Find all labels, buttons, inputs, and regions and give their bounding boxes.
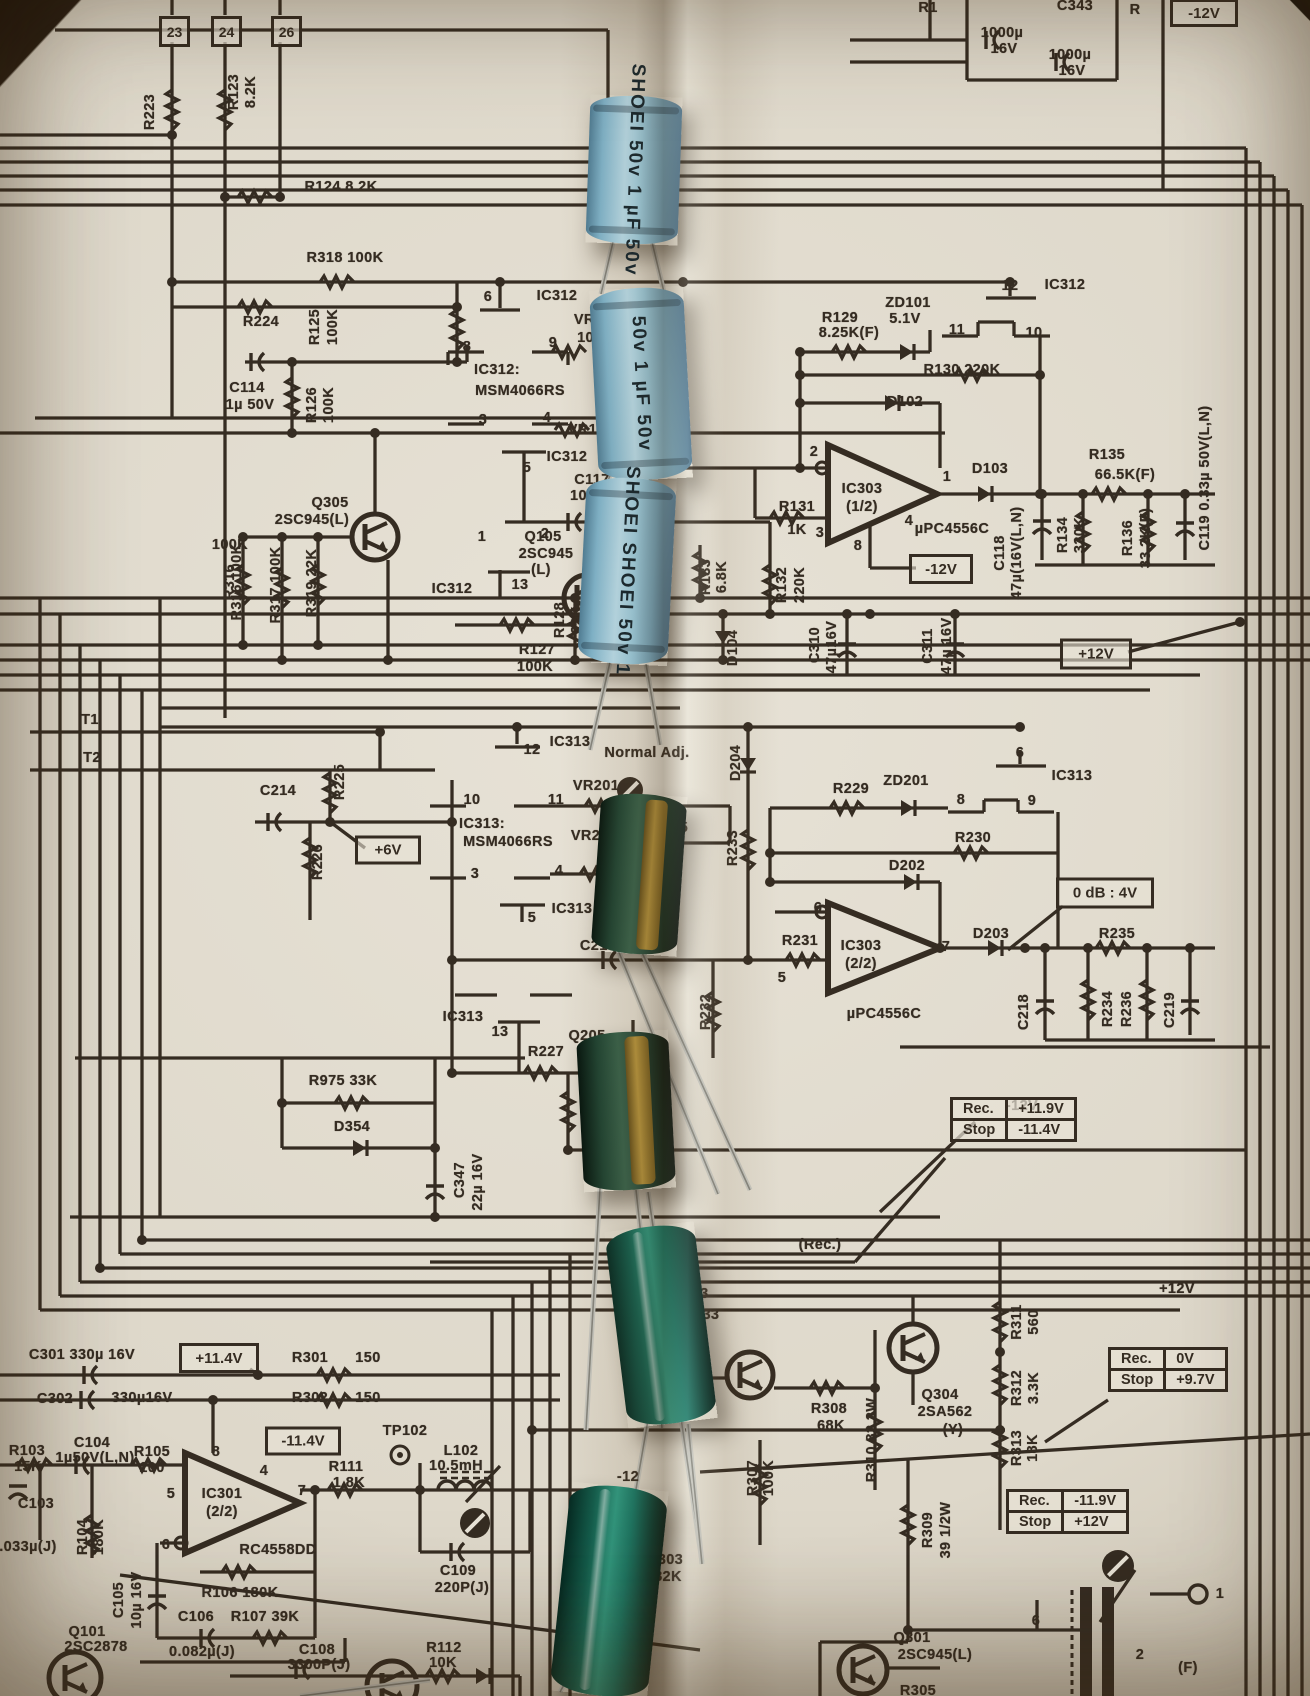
voltage-table-cell: -11.9V (1063, 1491, 1128, 1512)
electrolytic-capacitor-blue: 50v 1 µF 50v (589, 286, 693, 483)
schematic-label: 1µ 50V (226, 397, 275, 413)
schematic-label: (Y) (943, 1422, 964, 1438)
schematic-label: 3300P(J) (288, 1657, 351, 1673)
schematic-label: IC313: (459, 816, 505, 832)
schematic-label: RC4558DD (239, 1542, 316, 1558)
voltage-table-cell: Stop (1008, 1512, 1063, 1533)
schematic-label: R124 8.2K (305, 179, 378, 195)
schematic-label: MSM4066RS (475, 383, 565, 399)
schematic-label: 3 (479, 412, 487, 428)
schematic-label: 3 (816, 525, 824, 541)
schematic-label: 4 (555, 863, 563, 879)
schematic-label: R107 39K (231, 1609, 300, 1625)
schematic-label: 1.8K (333, 1475, 365, 1491)
schematic-label: 18K (1025, 1434, 1041, 1462)
schematic-label: IC312: (474, 362, 520, 378)
terminal-box: 23 (159, 16, 190, 47)
schematic-label: R307 (745, 1460, 761, 1496)
schematic-label: 3 (471, 866, 479, 882)
schematic-label: 11 (949, 322, 965, 338)
schematic-label: R135 (1089, 447, 1125, 463)
schematic-label: R1 (918, 0, 937, 16)
schematic-label: L102 (444, 1443, 479, 1459)
schematic-label: R312 (1009, 1370, 1025, 1406)
schematic-label: R132 (774, 567, 790, 603)
schematic-label: C119 0.33µ 50V(L,N) (1197, 406, 1213, 551)
schematic-label: R235 (1099, 926, 1135, 942)
schematic-label: 100K (761, 1460, 777, 1496)
schematic-label: 39 1/2W (938, 1502, 954, 1559)
schematic-label: ZD101 (885, 295, 931, 311)
schematic-label: 4 (905, 513, 913, 529)
voltage-box: -12V (1170, 0, 1238, 27)
schematic-label: C104 (74, 1435, 110, 1451)
schematic-label: 16V (1059, 63, 1086, 79)
schematic-label: Q305 (311, 495, 348, 511)
schematic-label: 1000µ (1049, 47, 1092, 63)
schematic-label: IC313 (552, 901, 593, 917)
schematic-label: C109 (440, 1563, 476, 1579)
schematic-label: D354 (334, 1119, 370, 1135)
schematic-label: D102 (887, 394, 923, 410)
schematic-label: 66.5K(F) (1095, 467, 1155, 483)
voltage-table-cell: Stop (952, 1120, 1007, 1141)
schematic-label: 8.25K(F) (819, 325, 879, 341)
schematic-label: R223 (142, 94, 158, 130)
schematic-label: Normal Adj. (604, 745, 689, 761)
schematic-label: 5 (528, 910, 536, 926)
schematic-label: R318 100K (307, 250, 384, 266)
schematic-label: Q101 (68, 1624, 105, 1640)
schematic-label: C108 (299, 1642, 335, 1658)
schematic-label: R134 (1055, 517, 1071, 553)
schematic-label: R231 (782, 933, 818, 949)
schematic-label: 2SC945 (519, 546, 574, 562)
schematic-label: (F) (1178, 1660, 1198, 1676)
schematic-label: 22µ 16V (470, 1153, 486, 1210)
schematic-label: C219 (1162, 992, 1178, 1028)
schematic-label: R319 22K (304, 549, 320, 618)
schematic-label: R106 180K (202, 1585, 279, 1601)
voltage-table: Rec.-11.9VStop+12V (1006, 1489, 1129, 1534)
schematic-label: IC312 (547, 449, 588, 465)
schematic-label: R301 (292, 1350, 328, 1366)
schematic-label: R226 (310, 844, 326, 880)
schematic-label: (1/2) (846, 499, 878, 515)
voltage-table-cell: Rec. (1110, 1349, 1165, 1370)
terminal-box: 26 (271, 16, 302, 47)
schematic-label: T1 (81, 712, 99, 728)
schematic-label: IC303 (842, 481, 883, 497)
voltage-box: -11.4V (265, 1427, 341, 1456)
schematic-label: 2 (810, 444, 818, 460)
schematic-label: 47µ16V (824, 621, 840, 674)
voltage-box: 0 dB : 4V (1056, 878, 1154, 909)
schematic-label: 10K (429, 1655, 457, 1671)
schematic-label: 180K (91, 1519, 107, 1555)
schematic-label: 13 (512, 577, 529, 593)
voltage-table-cell: +9.7V (1165, 1370, 1226, 1391)
schematic-label: 6 (814, 900, 822, 916)
schematic-label: R311 (1009, 1304, 1025, 1339)
schematic-label: 3.3K (1026, 1372, 1042, 1404)
schematic-label: IC313 (550, 734, 591, 750)
schematic-label: TP102 (383, 1423, 428, 1439)
schematic-label: 9 (1028, 793, 1036, 809)
schematic-label: 13 (492, 1024, 509, 1040)
schematic-label: 100K (321, 387, 337, 423)
voltage-table-cell: Stop (1110, 1370, 1165, 1391)
schematic-label: R310 82 2W (864, 1398, 880, 1483)
voltage-box: -12V (909, 554, 973, 584)
schematic-label: R136 (1120, 520, 1136, 556)
schematic-label: 5.1V (889, 311, 920, 327)
voltage-table-cell: +12V (1063, 1512, 1128, 1533)
schematic-label: Q301 (893, 1630, 930, 1646)
terminal-box: 24 (211, 16, 242, 47)
schematic-label: 8 (854, 538, 862, 554)
schematic-label: R229 (833, 781, 869, 797)
schematic-label: 100 (139, 1460, 164, 1476)
schematic-label: 6 (484, 289, 492, 305)
schematic-label: 2SC945(L) (898, 1647, 973, 1663)
schematic-label: -12 (617, 1469, 639, 1485)
schematic-label: 8 (463, 339, 471, 355)
schematic-label: C343 (1057, 0, 1093, 14)
schematic-label: R316 100K (229, 544, 245, 621)
schematic-label: R313 (1009, 1430, 1025, 1466)
schematic-label: 10 (1026, 325, 1043, 341)
schematic-label: IC313 (443, 1009, 484, 1025)
schematic-label: C347 (452, 1162, 468, 1198)
schematic-label: 100K (325, 309, 341, 345)
schematic-label: R128 (552, 602, 568, 638)
schematic-label: 5 (523, 460, 531, 476)
electrolytic-capacitor-blue: SHOEI SHOEI 50v 1 (577, 476, 677, 666)
schematic-label: R (1130, 2, 1141, 18)
schematic-label: 330K (1072, 517, 1088, 553)
schematic-label: R111 (329, 1459, 364, 1475)
schematic-label: R232 (698, 994, 714, 1030)
schematic-label: 8.2K (243, 76, 259, 108)
schematic-label: R133 (698, 559, 714, 595)
schematic-label: R234 (1100, 991, 1116, 1027)
schematic-label: R127 (519, 642, 555, 658)
electrolytic-capacitor-blue: SHOEI 50v 1 µF 50v (585, 94, 682, 245)
schematic-label: (L) (531, 562, 551, 578)
schematic-label: 16V (991, 41, 1018, 57)
schematic-label: 15K (14, 1459, 42, 1475)
schematic-label: C311 (920, 628, 936, 663)
schematic-label: 8 (957, 792, 965, 808)
schematic-label: 4 (260, 1463, 268, 1479)
schematic-label: D104 (725, 630, 741, 666)
schematic-label: 1 (478, 529, 486, 545)
schematic-label: C114 (229, 380, 264, 396)
schematic-label: IC301 (202, 1486, 243, 1502)
schematic-label: IC312 (432, 581, 473, 597)
schematic-label: D203 (973, 926, 1009, 942)
schematic-label: 1 (1216, 1586, 1224, 1602)
schematic-label: R224 (243, 314, 279, 330)
schematic-label: 47µ 16V (939, 617, 955, 674)
schematic-label: 7 (298, 1483, 306, 1499)
schematic-label: 5 (167, 1486, 175, 1502)
schematic-label: 11 (548, 792, 564, 808)
schematic-label: R233 (725, 830, 741, 866)
schematic-label: 12 (524, 742, 541, 758)
schematic-label: 1K (787, 522, 806, 538)
voltage-table-cell: -11.4V (1007, 1120, 1076, 1141)
schematic-label: 2SC945(L) (275, 512, 350, 528)
schematic-label: R236 (1119, 991, 1135, 1027)
schematic-label: C310 (807, 627, 823, 663)
schematic-label: (2/2) (845, 956, 877, 972)
schematic-label: 7 (942, 939, 950, 955)
schematic-label: .033µ(J) (0, 1539, 57, 1555)
schematic-label: C301 330µ 16V (29, 1347, 135, 1363)
schematic-label: C105 (111, 1582, 127, 1618)
schematic-label: 220P(J) (435, 1580, 489, 1596)
voltage-table-cell: Rec. (952, 1099, 1007, 1120)
schematic-label: 10 (464, 792, 481, 808)
schematic-label: R305 (900, 1683, 936, 1696)
schematic-label: R227 (528, 1044, 564, 1060)
schematic-photo: R223R1238.2KR124 8.2KR318 100KR224R12510… (0, 0, 1310, 1696)
schematic-label: (Rec.) (799, 1237, 842, 1253)
schematic-label: µPC4556C (915, 521, 989, 537)
schematic-label: 6.8K (714, 561, 730, 593)
schematic-label: R104 (75, 1519, 91, 1555)
schematic-label: 1µ50V(L,N) (55, 1450, 134, 1466)
voltage-box: +12V (1060, 639, 1132, 670)
schematic-label: C118 (992, 535, 1008, 570)
schematic-label: 6 (1032, 1613, 1040, 1629)
schematic-label: C218 (1016, 994, 1032, 1030)
schematic-label: 150 (355, 1390, 380, 1406)
schematic-label: R131 (779, 499, 815, 515)
schematic-label: IC303 (841, 938, 882, 954)
schematic-label: IC312 (537, 288, 578, 304)
schematic-label: R126 (304, 387, 320, 423)
schematic-label: Q304 (921, 1387, 958, 1403)
schematic-label: D204 (728, 745, 744, 781)
schematic-label: 9 (549, 335, 557, 351)
schematic-label: 150 (355, 1350, 380, 1366)
schematic-label: Q105 (524, 529, 561, 545)
schematic-label: 68K (817, 1418, 845, 1434)
schematic-label: R308 (811, 1401, 847, 1417)
schematic-label: 220K (792, 567, 808, 603)
schematic-label: 2 (1136, 1647, 1144, 1663)
schematic-label: 10.5mH (429, 1458, 483, 1474)
schematic-label: 4 (543, 410, 551, 426)
voltage-box: +11.4V (179, 1343, 259, 1373)
schematic-label: D103 (972, 461, 1008, 477)
schematic-label: 0.082µ(J) (169, 1644, 235, 1660)
schematic-label: R309 (920, 1512, 936, 1548)
schematic-label: C106 (178, 1609, 214, 1625)
schematic-label: 2SC2878 (64, 1639, 127, 1655)
schematic-label: MSM4066RS (463, 834, 553, 850)
schematic-label: R975 33K (309, 1073, 378, 1089)
schematic-label: 12 (1002, 278, 1019, 294)
voltage-table: Rec.0VStop+9.7V (1108, 1347, 1228, 1392)
schematic-label: C103 (18, 1496, 54, 1512)
voltage-table-cell: +11.9V (1007, 1099, 1076, 1120)
schematic-label: 330µ16V (111, 1390, 172, 1406)
electrolytic-capacitor-green (576, 1030, 676, 1193)
schematic-label: C214 (260, 783, 296, 799)
schematic-label: IC313 (1052, 768, 1093, 784)
schematic-label: R230 (955, 830, 991, 846)
schematic-label: R125 (307, 309, 323, 345)
schematic-label: µPC4556C (847, 1006, 921, 1022)
schematic-label: C302 (37, 1391, 73, 1407)
schematic-label: ZD201 (883, 773, 929, 789)
electrolytic-capacitor-green (591, 791, 688, 957)
schematic-label: 6 (1016, 745, 1024, 761)
schematic-label: (2/2) (206, 1504, 238, 1520)
schematic-label: IC312 (1045, 277, 1086, 293)
schematic-label: 8 (212, 1444, 220, 1460)
schematic-label: 5 (778, 970, 786, 986)
schematic-label: D202 (889, 858, 925, 874)
schematic-label: 1 (943, 469, 951, 485)
voltage-table-cell: Rec. (1008, 1491, 1063, 1512)
schematic-label: T2 (83, 750, 101, 766)
schematic-label: R112 (426, 1640, 461, 1656)
schematic-label: 33.2K(F) (1138, 508, 1154, 568)
schematic-label: 560 (1026, 1309, 1042, 1334)
schematic-label: R225 (332, 764, 348, 800)
voltage-box: +6V (355, 836, 421, 865)
schematic-label: R103 (9, 1443, 45, 1459)
schematic-label: 2SA562 (918, 1404, 973, 1420)
schematic-label: 6 (162, 1537, 170, 1553)
schematic-label: R129 (822, 310, 858, 326)
schematic-label: 47µ(16V(L,N) (1009, 507, 1025, 600)
voltage-table: Rec.+11.9VStop-11.4V (950, 1097, 1077, 1142)
schematic-label: R302 (292, 1390, 328, 1406)
schematic-label: +12V (1159, 1281, 1195, 1297)
schematic-label: R130 220K (924, 362, 1001, 378)
schematic-label: R105 (134, 1444, 170, 1460)
schematic-label: 10µ 16V (129, 1571, 145, 1628)
schematic-label: 100K (517, 659, 553, 675)
voltage-table-cell: 0V (1165, 1349, 1226, 1370)
schematic-label: R317 100K (268, 547, 284, 624)
schematic-label: 1000µ (981, 25, 1024, 41)
schematic-label: R123 (226, 74, 242, 110)
